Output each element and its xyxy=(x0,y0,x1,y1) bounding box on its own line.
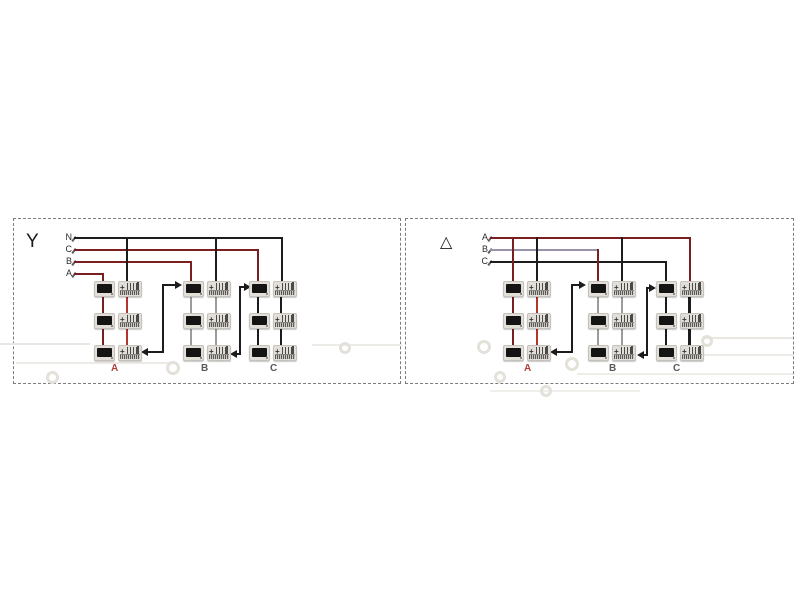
power-meter-device: + xyxy=(249,313,297,329)
chain-arrow-line xyxy=(147,351,164,353)
terminal-strip xyxy=(120,290,140,295)
vertical-wire xyxy=(281,237,283,282)
device-terminal-module: + xyxy=(118,345,142,361)
device-terminal-module: + xyxy=(527,345,551,361)
device-terminal-module: + xyxy=(118,313,142,329)
vertical-wire xyxy=(689,237,691,282)
vertical-wire xyxy=(665,261,667,282)
vertical-wire xyxy=(688,296,691,314)
vertical-wire xyxy=(190,329,192,345)
chain-arrowhead-left xyxy=(230,350,237,358)
device-terminal-module: + xyxy=(680,313,704,329)
device-display-module xyxy=(249,281,270,297)
device-led xyxy=(520,325,522,327)
device-display-module xyxy=(94,345,115,361)
device-display-module xyxy=(503,345,524,361)
power-meter-device: + xyxy=(183,281,231,297)
device-terminal-module: + xyxy=(273,313,297,329)
vertical-wire xyxy=(257,297,259,313)
terminal-strip xyxy=(529,322,549,327)
device-terminal-module: + xyxy=(207,313,231,329)
vertical-wire xyxy=(126,329,128,345)
chain-arrow-line xyxy=(571,284,573,353)
diagram-stage: Y △ NCBA+++A+++B+++CABC+++A+++B+++C xyxy=(0,0,800,600)
device-screen xyxy=(659,316,674,325)
vertical-wire xyxy=(126,297,128,313)
terminal-strip xyxy=(209,322,229,327)
decor-pad-ring xyxy=(565,357,579,371)
device-led xyxy=(200,325,202,327)
bus-wire xyxy=(74,249,259,251)
device-terminal-module: + xyxy=(273,345,297,361)
device-display-module xyxy=(656,345,677,361)
device-terminal-module: + xyxy=(118,281,142,297)
decor-pad-ring xyxy=(166,361,180,375)
bus-label-a: A xyxy=(58,268,72,278)
bus-label-b: B xyxy=(58,256,72,266)
terminal-strip xyxy=(682,322,702,327)
column-label-a: A xyxy=(524,363,531,374)
device-screen xyxy=(591,284,606,293)
device-screen xyxy=(97,316,112,325)
device-display-module xyxy=(183,345,204,361)
device-terminal-module: + xyxy=(612,281,636,297)
chain-arrow-line xyxy=(646,287,648,356)
decor-pad-ring xyxy=(46,371,59,384)
vertical-wire xyxy=(215,297,217,313)
device-led xyxy=(266,293,268,295)
device-display-module xyxy=(588,313,609,329)
terminal-strip xyxy=(120,354,140,359)
bus-wire xyxy=(74,273,104,275)
column-label-b: B xyxy=(609,363,616,374)
vertical-wire xyxy=(102,329,104,345)
device-display-module xyxy=(183,281,204,297)
vertical-wire xyxy=(215,237,217,282)
device-terminal-module: + xyxy=(680,281,704,297)
device-led xyxy=(605,357,607,359)
vertical-wire xyxy=(280,329,282,345)
device-terminal-module: + xyxy=(527,281,551,297)
device-screen xyxy=(186,284,201,293)
column-label-a: A xyxy=(111,363,118,374)
vertical-wire xyxy=(126,237,128,282)
terminal-strip xyxy=(275,290,295,295)
vertical-wire xyxy=(597,297,599,313)
vertical-wire xyxy=(257,329,259,345)
decor-pad-ring xyxy=(540,385,552,397)
device-screen xyxy=(591,348,606,357)
power-meter-device: + xyxy=(503,281,551,297)
device-display-module xyxy=(588,281,609,297)
vertical-wire xyxy=(621,237,623,282)
chain-arrowhead-left xyxy=(637,351,644,359)
decor-trace-line xyxy=(16,362,174,364)
terminal-strip xyxy=(614,322,634,327)
bus-label-c: C xyxy=(474,256,488,266)
power-meter-device: + xyxy=(249,281,297,297)
device-display-module xyxy=(94,313,115,329)
device-led xyxy=(111,293,113,295)
device-screen xyxy=(186,348,201,357)
device-display-module xyxy=(503,281,524,297)
vertical-wire xyxy=(512,297,514,313)
device-display-module xyxy=(183,313,204,329)
decor-trace-line xyxy=(0,343,90,345)
device-led xyxy=(266,325,268,327)
vertical-wire xyxy=(512,237,514,282)
bus-label-c: C xyxy=(58,244,72,254)
device-led xyxy=(200,293,202,295)
vertical-wire xyxy=(190,261,192,282)
device-screen xyxy=(186,316,201,325)
terminal-strip xyxy=(120,322,140,327)
device-led xyxy=(520,357,522,359)
power-meter-device: + xyxy=(249,345,297,361)
power-meter-device: + xyxy=(588,313,636,329)
power-meter-device: + xyxy=(94,345,142,361)
device-led xyxy=(673,293,675,295)
power-meter-device: + xyxy=(94,281,142,297)
vertical-wire xyxy=(665,297,667,313)
column-label-c: C xyxy=(270,363,277,374)
device-terminal-module: + xyxy=(527,313,551,329)
column-label-b: B xyxy=(201,363,208,374)
terminal-strip xyxy=(275,354,295,359)
device-led xyxy=(605,293,607,295)
bus-wire xyxy=(74,237,283,239)
terminal-strip xyxy=(682,290,702,295)
terminal-strip xyxy=(682,354,702,359)
terminal-strip xyxy=(209,290,229,295)
power-meter-device: + xyxy=(656,345,704,361)
device-display-module xyxy=(249,313,270,329)
device-screen xyxy=(252,284,267,293)
power-meter-device: + xyxy=(588,281,636,297)
chain-arrowhead-left xyxy=(550,348,557,356)
device-display-module xyxy=(588,345,609,361)
device-display-module xyxy=(249,345,270,361)
chain-arrow-line xyxy=(239,286,241,355)
chain-arrowhead-left xyxy=(141,348,148,356)
terminal-strip xyxy=(614,290,634,295)
vertical-wire xyxy=(621,297,623,313)
device-led xyxy=(200,357,202,359)
chain-arrow-line xyxy=(556,351,573,353)
terminal-strip xyxy=(614,354,634,359)
vertical-wire xyxy=(512,329,514,345)
power-meter-device: + xyxy=(183,313,231,329)
vertical-wire xyxy=(597,249,599,282)
bus-label-a: A xyxy=(474,232,488,242)
decor-pad-ring xyxy=(339,342,351,354)
device-screen xyxy=(506,284,521,293)
decor-pad-ring xyxy=(494,371,506,383)
chain-arrowhead-right xyxy=(579,281,586,289)
decor-trace-line xyxy=(312,344,402,346)
bus-wire xyxy=(490,249,599,251)
power-meter-device: + xyxy=(503,345,551,361)
bus-wire xyxy=(490,261,667,263)
device-terminal-module: + xyxy=(680,345,704,361)
decor-pad-ring xyxy=(477,340,491,354)
device-display-module xyxy=(656,313,677,329)
vertical-wire xyxy=(190,297,192,313)
delta-symbol: △ xyxy=(440,235,452,251)
device-led xyxy=(520,293,522,295)
vertical-wire xyxy=(102,297,104,313)
device-terminal-module: + xyxy=(612,345,636,361)
device-screen xyxy=(659,348,674,357)
device-screen xyxy=(97,284,112,293)
vertical-wire xyxy=(536,237,538,282)
vertical-wire xyxy=(280,297,282,313)
bus-wire xyxy=(74,261,192,263)
power-meter-device: + xyxy=(503,313,551,329)
device-led xyxy=(605,325,607,327)
decor-trace-line xyxy=(703,337,793,339)
device-led xyxy=(111,357,113,359)
device-screen xyxy=(252,316,267,325)
chain-arrowhead-right xyxy=(649,284,656,292)
chain-arrow-line xyxy=(162,284,176,286)
bus-label-b: B xyxy=(474,244,488,254)
device-screen xyxy=(506,316,521,325)
chain-arrowhead-right xyxy=(175,281,182,289)
terminal-strip xyxy=(529,290,549,295)
power-meter-device: + xyxy=(588,345,636,361)
device-screen xyxy=(252,348,267,357)
terminal-strip xyxy=(529,354,549,359)
vertical-wire xyxy=(597,329,599,345)
device-led xyxy=(673,325,675,327)
chain-arrow-line xyxy=(162,284,164,353)
decor-trace-line xyxy=(703,354,793,356)
device-screen xyxy=(659,284,674,293)
device-display-module xyxy=(656,281,677,297)
device-screen xyxy=(591,316,606,325)
power-meter-device: + xyxy=(94,313,142,329)
decor-trace-line xyxy=(490,390,640,392)
column-label-c: C xyxy=(673,363,680,374)
device-led xyxy=(266,357,268,359)
vertical-wire xyxy=(536,297,538,313)
power-meter-device: + xyxy=(656,281,704,297)
vertical-wire xyxy=(665,329,667,345)
vertical-wire xyxy=(621,329,623,345)
device-terminal-module: + xyxy=(273,281,297,297)
vertical-wire xyxy=(257,249,259,282)
power-meter-device: + xyxy=(183,345,231,361)
device-display-module xyxy=(503,313,524,329)
power-meter-device: + xyxy=(656,313,704,329)
device-screen xyxy=(506,348,521,357)
bus-wire xyxy=(490,237,691,239)
device-terminal-module: + xyxy=(207,281,231,297)
terminal-strip xyxy=(209,354,229,359)
device-screen xyxy=(97,348,112,357)
vertical-wire xyxy=(215,329,217,345)
wye-symbol: Y xyxy=(26,232,39,251)
device-led xyxy=(111,325,113,327)
device-led xyxy=(673,357,675,359)
bus-label-n: N xyxy=(58,232,72,242)
terminal-strip xyxy=(275,322,295,327)
device-display-module xyxy=(94,281,115,297)
vertical-wire xyxy=(688,328,691,346)
device-terminal-module: + xyxy=(207,345,231,361)
device-terminal-module: + xyxy=(612,313,636,329)
vertical-wire xyxy=(536,329,538,345)
